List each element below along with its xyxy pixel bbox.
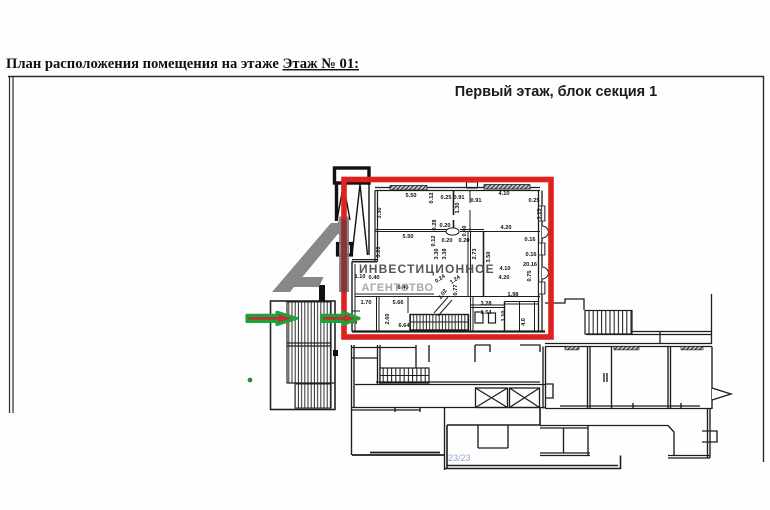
svg-text:0.40: 0.40	[462, 226, 468, 237]
svg-text:6.64: 6.64	[399, 323, 411, 329]
svg-text:1.98: 1.98	[508, 292, 519, 298]
svg-text:1.10: 1.10	[501, 311, 507, 322]
svg-text:4.0: 4.0	[521, 318, 527, 326]
svg-text:1.30: 1.30	[455, 203, 461, 214]
svg-text:4.10: 4.10	[499, 191, 510, 197]
svg-text:3.20: 3.20	[376, 247, 382, 258]
svg-text:0.20: 0.20	[459, 238, 470, 244]
svg-text:0.16: 0.16	[525, 237, 536, 243]
svg-text:5.50: 5.50	[406, 193, 417, 199]
svg-text:0.25: 0.25	[441, 195, 452, 201]
svg-text:0.91: 0.91	[471, 198, 482, 204]
svg-text:0.16: 0.16	[526, 252, 537, 258]
svg-text:0.12: 0.12	[429, 193, 435, 204]
svg-text:3.50: 3.50	[486, 252, 492, 263]
svg-text:ИНВЕСТИЦИОННОЕ: ИНВЕСТИЦИОННОЕ	[359, 262, 495, 276]
svg-text:0.75: 0.75	[527, 271, 533, 282]
svg-text:5.50: 5.50	[403, 234, 414, 240]
svg-text:0.77: 0.77	[453, 285, 459, 296]
svg-text:0.91: 0.91	[454, 195, 465, 201]
svg-text:0.28: 0.28	[432, 220, 438, 231]
svg-text:Первый этаж, блок секция 1: Первый этаж, блок секция 1	[455, 84, 657, 100]
svg-text:20.16: 20.16	[523, 262, 537, 268]
svg-text:АГЕНТСТВО: АГЕНТСТВО	[362, 282, 434, 294]
svg-text:2.73: 2.73	[472, 249, 478, 260]
svg-text:План расположения помещения на: План расположения помещения на этаже Эта…	[6, 56, 359, 72]
svg-text:1.70: 1.70	[361, 300, 372, 306]
svg-text:3.28: 3.28	[481, 301, 492, 307]
svg-text:3.15: 3.15	[537, 209, 543, 220]
svg-text:2.60: 2.60	[385, 314, 391, 325]
svg-text:23/23: 23/23	[448, 453, 471, 463]
svg-text:0.20: 0.20	[440, 223, 451, 229]
svg-text:4.20: 4.20	[501, 225, 512, 231]
svg-text:0.25: 0.25	[529, 198, 540, 204]
svg-text:3.30: 3.30	[377, 208, 383, 219]
svg-text:4.10: 4.10	[500, 266, 511, 272]
svg-text:3.30: 3.30	[434, 249, 440, 260]
svg-text:1.64: 1.64	[481, 310, 493, 316]
svg-text:3.38: 3.38	[442, 249, 448, 260]
svg-text:4.20: 4.20	[499, 275, 510, 281]
svg-text:5.66: 5.66	[393, 300, 404, 306]
svg-text:0.12: 0.12	[431, 236, 437, 247]
svg-text:0.20: 0.20	[442, 238, 453, 244]
